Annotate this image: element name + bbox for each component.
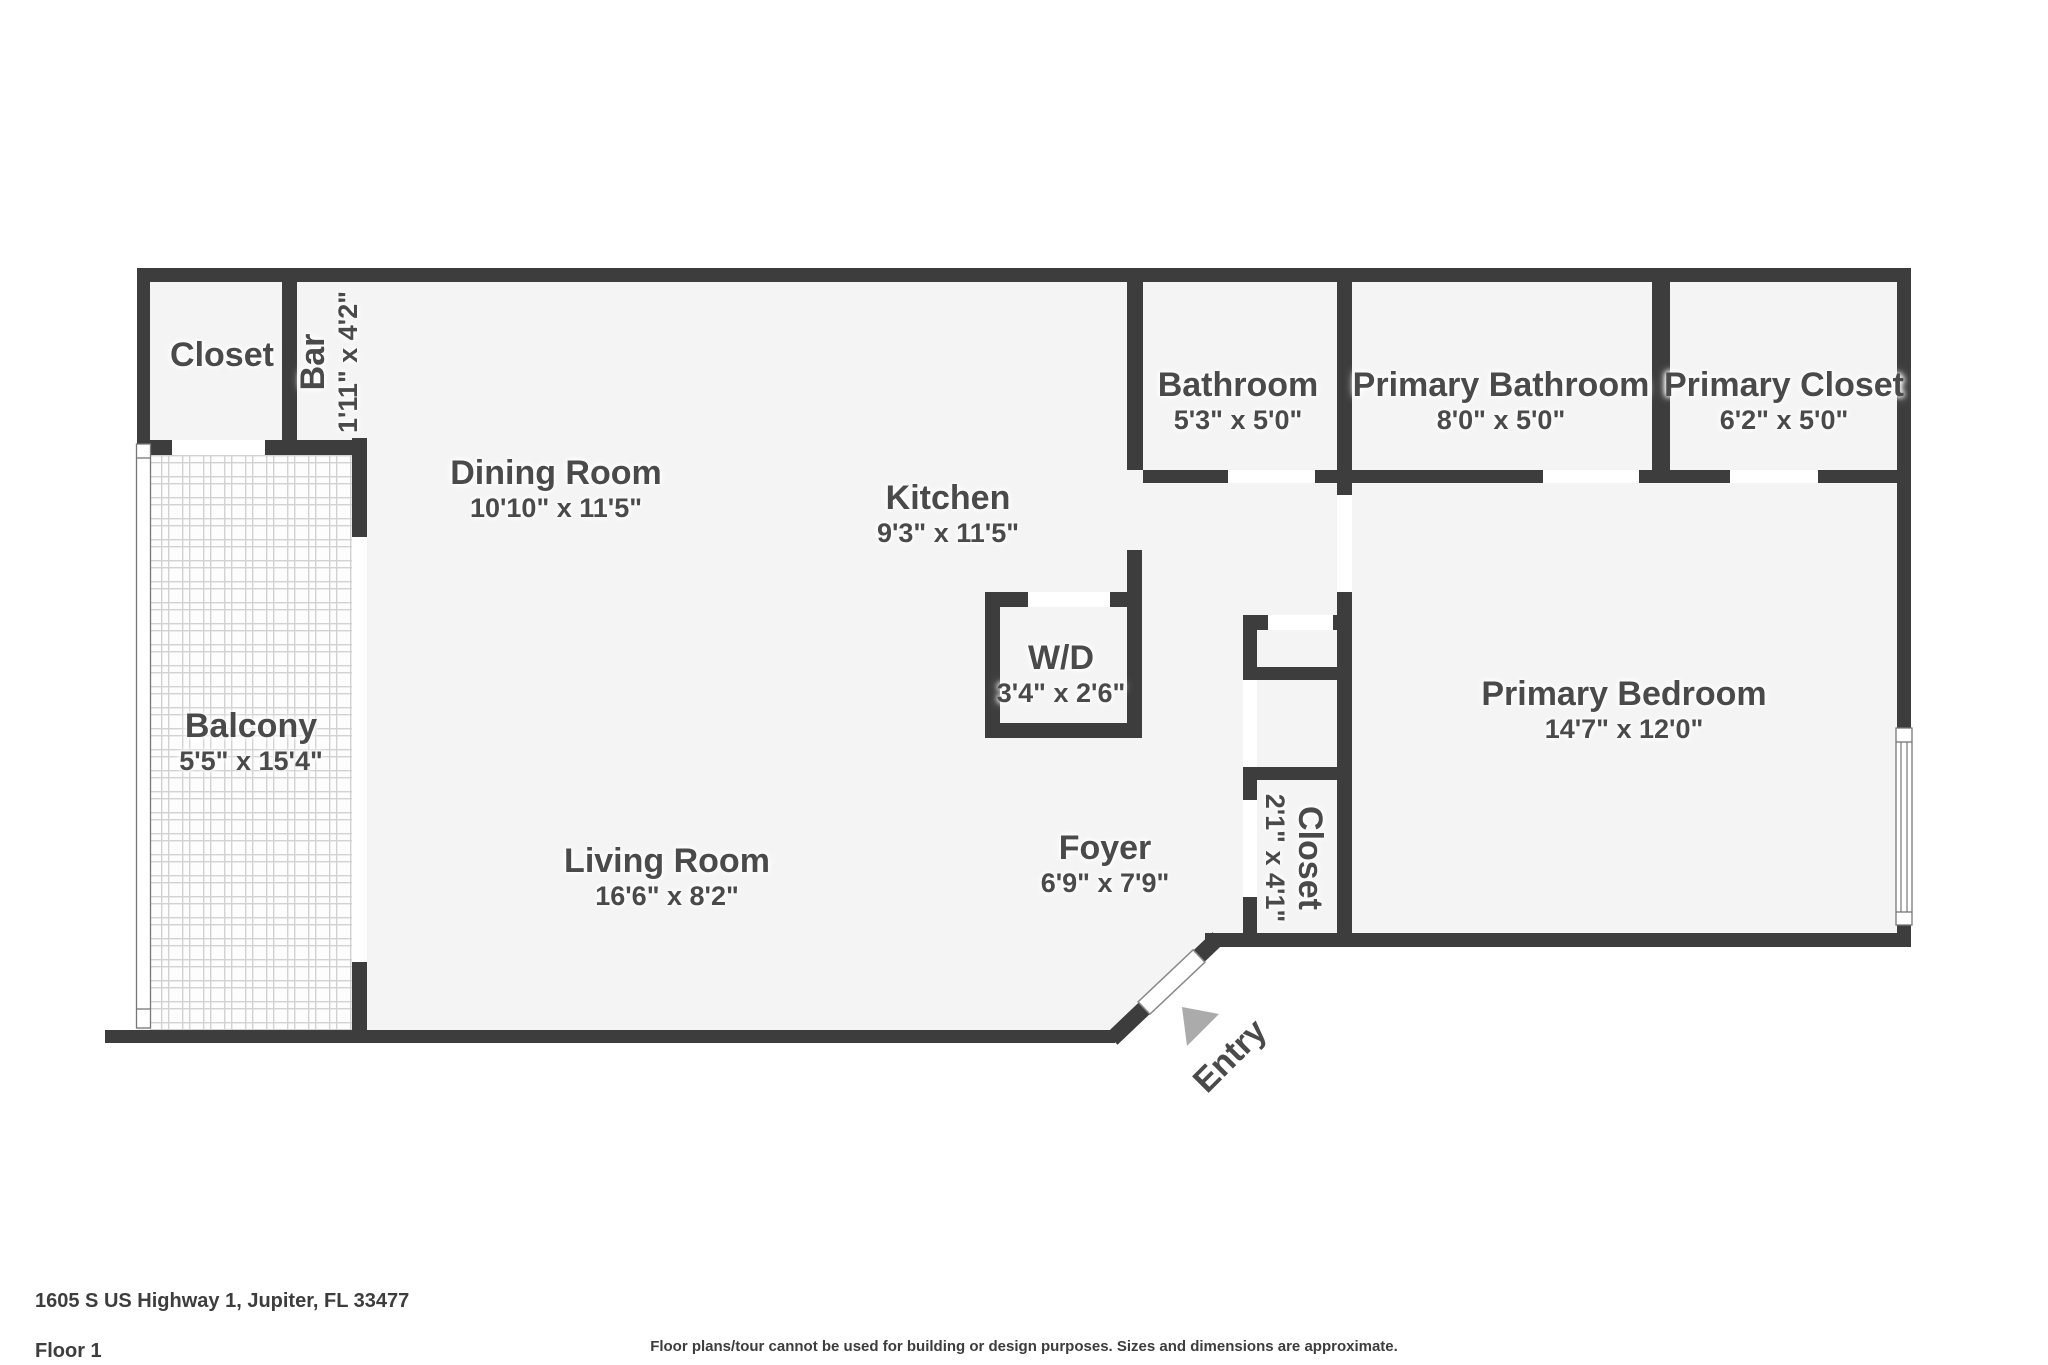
room-dims: 14'7" x 12'0": [1481, 714, 1766, 746]
room-name: Primary Closet: [1664, 365, 1904, 405]
room-label-wd: W/D 3'4" x 2'6": [997, 638, 1126, 710]
room-dims: 10'10" x 11'5": [450, 493, 662, 525]
room-dims: 2'1" x 4'1": [1258, 794, 1290, 923]
room-name: Closet: [1290, 794, 1330, 923]
room-dims: 6'2" x 5'0": [1664, 405, 1904, 437]
room-label-foyer: Foyer 6'9" x 7'9": [1041, 828, 1170, 900]
room-dims: 5'5" x 15'4": [179, 746, 323, 778]
room-name: Bar: [293, 291, 333, 433]
room-name: Foyer: [1041, 828, 1170, 868]
room-dims: 6'9" x 7'9": [1041, 868, 1170, 900]
room-label-closet-tl: Closet: [170, 335, 274, 375]
floor-number-text: Floor 1: [35, 1340, 102, 1363]
room-name: Closet: [170, 335, 274, 375]
address-text: 1605 S US Highway 1, Jupiter, FL 33477: [35, 1290, 409, 1313]
floorplan-canvas: Closet Bar 1'11" x 4'2" Dining Room 10'1…: [0, 0, 2048, 1365]
room-name: Primary Bedroom: [1481, 674, 1766, 714]
room-name: Dining Room: [450, 453, 662, 493]
room-label-primary-closet: Primary Closet 6'2" x 5'0": [1664, 365, 1904, 437]
room-label-closet-foyer: Closet 2'1" x 4'1": [1258, 794, 1330, 923]
room-label-dining: Dining Room 10'10" x 11'5": [450, 453, 662, 525]
room-name: Kitchen: [877, 478, 1019, 518]
room-label-bathroom: Bathroom 5'3" x 5'0": [1158, 365, 1319, 437]
room-label-primary-bedroom: Primary Bedroom 14'7" x 12'0": [1481, 674, 1766, 746]
room-label-primary-bathroom: Primary Bathroom 8'0" x 5'0": [1353, 365, 1650, 437]
room-label-balcony: Balcony 5'5" x 15'4": [179, 706, 323, 778]
balcony-railing: [137, 444, 151, 1028]
bedroom-window: [1896, 728, 1912, 925]
exterior-cutout: [1108, 933, 1911, 1043]
room-dims: 8'0" x 5'0": [1353, 405, 1650, 437]
room-name: Balcony: [179, 706, 323, 746]
disclaimer-text: Floor plans/tour cannot be used for buil…: [650, 1338, 1398, 1355]
room-dims: 16'6" x 8'2": [564, 881, 770, 913]
room-name: Living Room: [564, 841, 770, 881]
room-name: W/D: [997, 638, 1126, 678]
room-name: Primary Bathroom: [1353, 365, 1650, 405]
room-dims: 3'4" x 2'6": [997, 678, 1126, 710]
room-dims: 5'3" x 5'0": [1158, 405, 1319, 437]
room-label-kitchen: Kitchen 9'3" x 11'5": [877, 478, 1019, 550]
room-name: Bathroom: [1158, 365, 1319, 405]
room-label-bar: Bar 1'11" x 4'2": [293, 291, 365, 433]
room-dims: 9'3" x 11'5": [877, 518, 1019, 550]
room-label-living: Living Room 16'6" x 8'2": [564, 841, 770, 913]
room-dims: 1'11" x 4'2": [333, 291, 365, 433]
